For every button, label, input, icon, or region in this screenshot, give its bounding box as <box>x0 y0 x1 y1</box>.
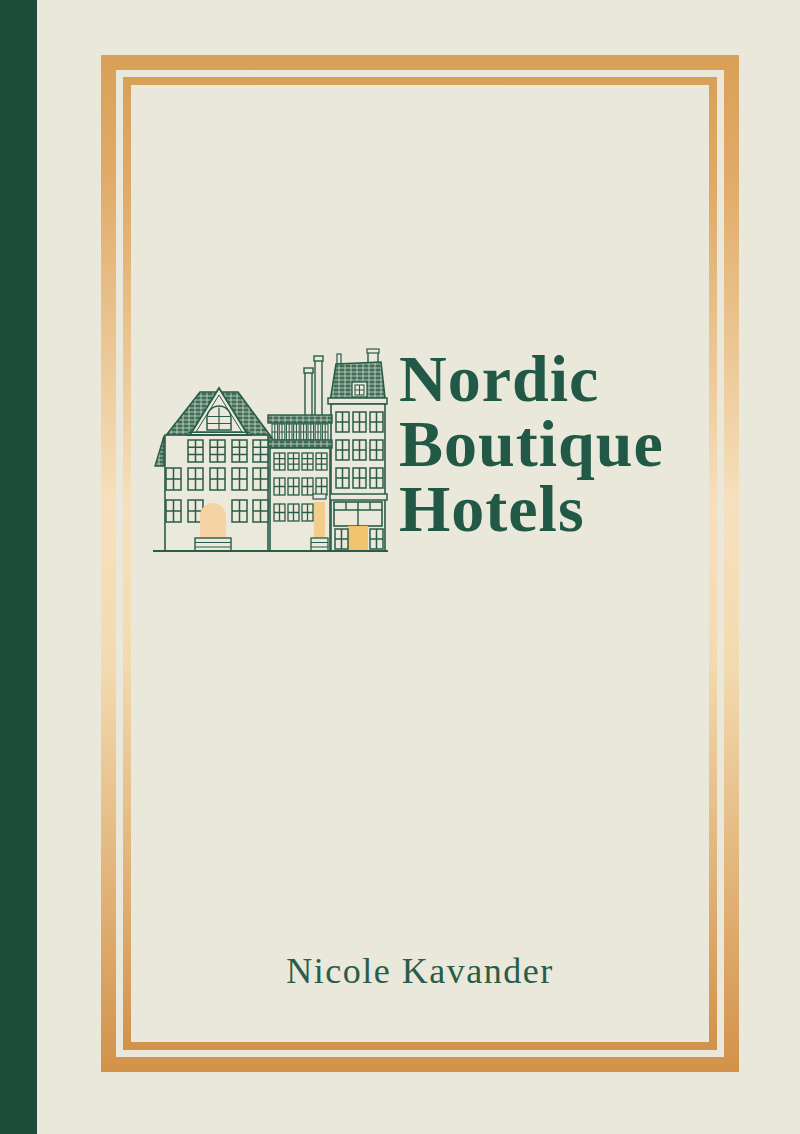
arched-door <box>200 503 226 538</box>
title-line-2: Boutique <box>399 411 664 476</box>
gold-frame-inner <box>123 77 717 1050</box>
gold-door <box>348 526 368 551</box>
right-townhouse <box>328 349 387 551</box>
left-townhouse <box>155 388 272 551</box>
book-title: Nordic Boutique Hotels <box>399 346 664 541</box>
author-name: Nicole Kavander <box>101 950 739 992</box>
book-spine <box>0 0 37 1134</box>
middle-townhouse <box>268 415 332 551</box>
townhouses-illustration-icon <box>150 344 390 556</box>
gold-door <box>314 502 325 538</box>
title-line-1: Nordic <box>399 346 664 411</box>
title-line-3: Hotels <box>399 476 664 541</box>
